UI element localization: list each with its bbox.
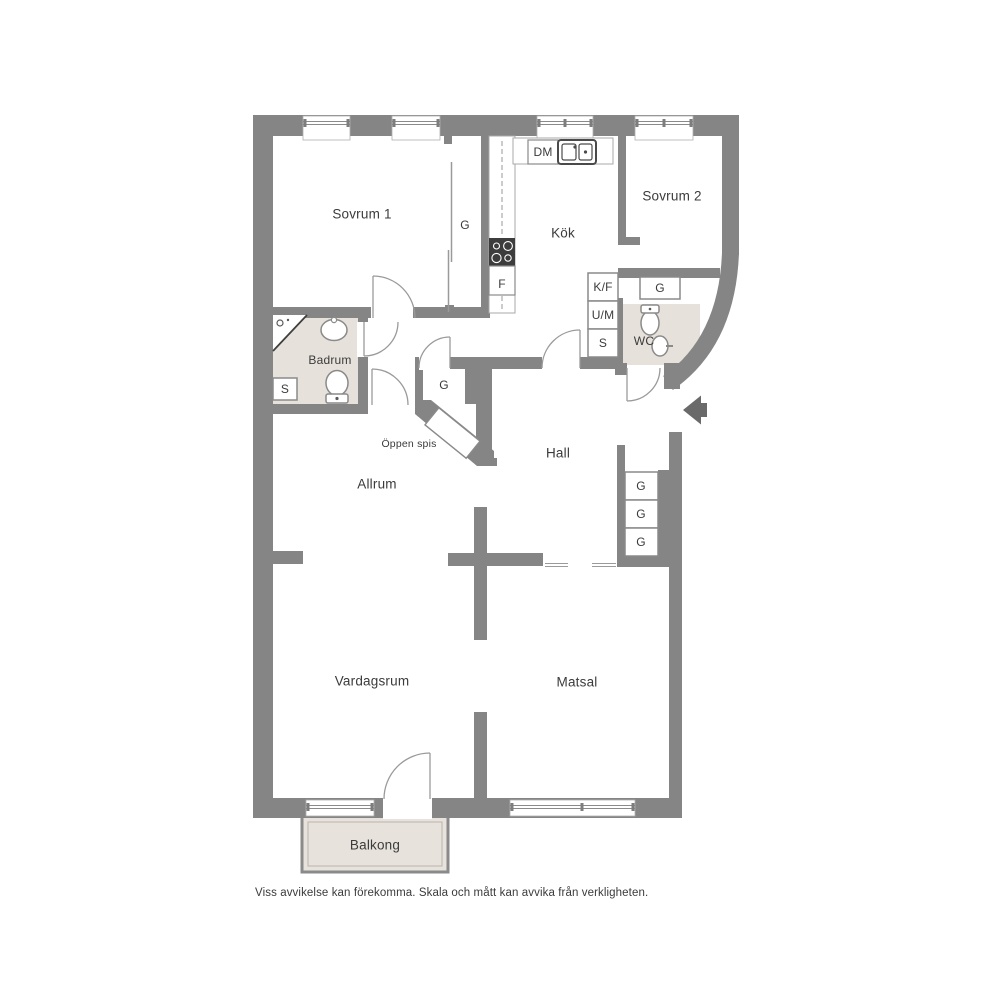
window: [635, 116, 693, 140]
room-label-matsal: Matsal: [557, 675, 598, 689]
room-label-sovrum2: Sovrum 2: [642, 189, 701, 203]
window: [537, 116, 593, 140]
room-label-vardagsrum: Vardagsrum: [335, 674, 410, 688]
room-label-kok: Kök: [551, 226, 575, 240]
fixture-label-um: U/M: [592, 309, 615, 321]
door-hall-kitchen: [542, 330, 580, 368]
entrance-arrow-icon: [683, 396, 707, 425]
toilet-icon: [326, 371, 348, 404]
sliding-wardrobe-partition: [449, 162, 452, 312]
closet-label-hall-1: G: [636, 480, 646, 492]
floorplan-drawing: [0, 0, 992, 992]
window: [392, 116, 440, 140]
window: [510, 800, 635, 816]
room-label-balkong: Balkong: [350, 838, 400, 852]
toilet-icon: [641, 305, 659, 335]
room-label-sovrum1: Sovrum 1: [332, 207, 391, 221]
room-label-allrum: Allrum: [357, 477, 396, 491]
door-badrum: [364, 322, 398, 356]
room-label-badrum: Badrum: [308, 354, 351, 366]
door-allrum-corridor: [372, 369, 408, 405]
fixture-label-dm: DM: [533, 146, 552, 158]
room-label-wc: WC: [634, 335, 654, 347]
fixture-label-f: F: [498, 278, 506, 290]
closet-label-wardrobe: G: [460, 219, 470, 231]
fixture-label-s-bad: S: [281, 383, 289, 395]
window: [306, 800, 374, 816]
disclaimer-text: Viss avvikelse kan förekomma. Skala och …: [255, 887, 648, 899]
floorplan-page: Sovrum 1 G Kök DM Sovrum 2 F K/F U/M S G…: [0, 0, 992, 992]
closet-label-hall-2: G: [636, 508, 646, 520]
window: [303, 116, 350, 140]
closet-label-nook: G: [439, 379, 449, 391]
opening-markers: [545, 564, 616, 567]
fixture-label-kf: K/F: [593, 281, 612, 293]
fixture-label-s-wc: S: [599, 337, 607, 349]
door-balcony: [384, 753, 430, 799]
stove-icon: [489, 238, 515, 266]
closet-label-g-wc: G: [655, 282, 665, 294]
door-wc: [627, 368, 660, 401]
sink-icon: [558, 140, 596, 164]
closet-label-hall-3: G: [636, 536, 646, 548]
fixture-label-fireplace: Öppen spis: [381, 439, 436, 450]
room-label-hall: Hall: [546, 446, 570, 460]
